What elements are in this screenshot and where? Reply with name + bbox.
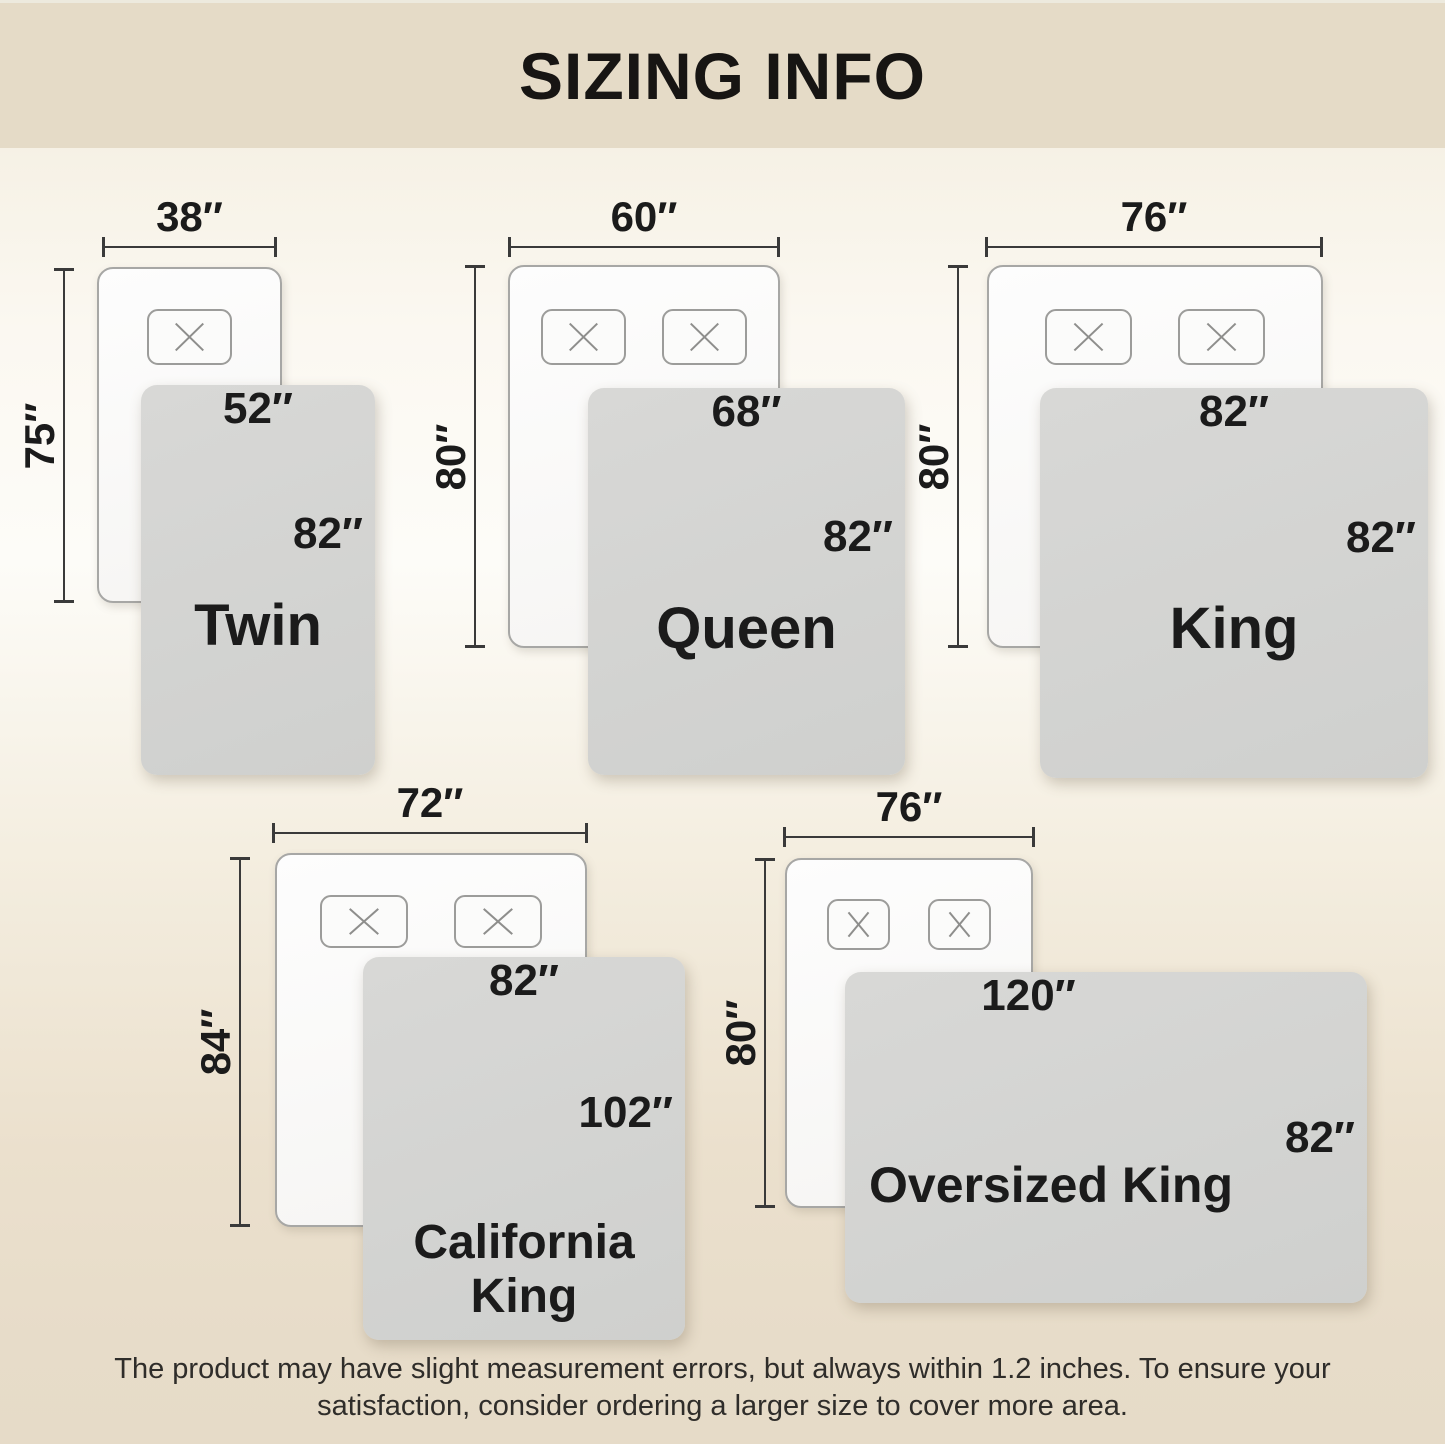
length-dimension-line: 80″ [755,858,775,1208]
dimension-tick [1032,827,1035,847]
blanket: 120″ 82″ Oversized King [845,972,1367,1303]
blanket: 82″ 102″ California King [363,957,685,1340]
blanket-length-label: 82″ [293,512,363,556]
mattress-width-label: 72″ [397,779,464,827]
pillow-x-icon [543,311,624,363]
dimension-line [508,246,780,248]
mattress-width-label: 76″ [876,783,943,831]
pillow [827,899,890,950]
size-name-label: King [1040,599,1428,659]
pillow [1045,309,1132,365]
blanket: 52″ 82″ Twin [141,385,375,775]
disclaimer-line-2: satisfaction, consider ordering a larger… [0,1388,1445,1425]
blanket-width-label: 120″ [845,974,1367,1018]
dimension-tick [274,237,277,257]
pillow-x-icon [149,311,230,363]
pillow [320,895,408,948]
pillow-x-icon [322,897,406,946]
width-dimension-line: 60″ [508,237,780,257]
mattress-length-label: 80″ [427,423,475,490]
pillow [454,895,542,948]
mattress-length-label: 80″ [910,423,958,490]
dimension-line [985,246,1323,248]
width-dimension-line: 72″ [272,823,588,843]
pillow-x-icon [456,897,540,946]
width-dimension-line: 76″ [783,827,1035,847]
pillow-x-icon [829,901,888,948]
pillow-x-icon [1180,311,1263,363]
dimension-tick [755,1205,775,1208]
dimension-tick [230,1224,250,1227]
blanket-length-label: 82″ [823,515,893,559]
length-dimension-line: 80″ [948,265,968,648]
size-name-label: Queen [588,599,905,659]
disclaimer-note: The product may have slight measurement … [0,1351,1445,1425]
blanket: 82″ 82″ King [1040,388,1428,778]
blanket-width-label: 82″ [363,959,685,1003]
pillow [147,309,232,365]
blanket-width-label: 52″ [141,387,375,431]
dimension-tick [948,645,968,648]
dimension-line [102,246,277,248]
width-dimension-line: 76″ [985,237,1323,257]
dimension-tick [465,645,485,648]
mattress-length-label: 80″ [717,1000,765,1067]
disclaimer-line-1: The product may have slight measurement … [0,1351,1445,1388]
sizing-infographic: SIZING INFO 38″ 75″ 52″ 82″ Twin [0,0,1445,1444]
dimension-line [783,836,1035,838]
pillow-x-icon [1047,311,1130,363]
length-dimension-line: 80″ [465,265,485,648]
blanket-length-label: 82″ [1346,516,1416,560]
mattress-length-label: 75″ [16,402,64,469]
dimension-tick [1320,237,1323,257]
mattress-width-label: 38″ [156,193,223,241]
pillow-x-icon [930,901,989,948]
pillow [1178,309,1265,365]
width-dimension-line: 38″ [102,237,277,257]
size-name-label: Oversized King [845,1157,1257,1214]
blanket-width-label: 68″ [588,390,905,434]
title-banner: SIZING INFO [0,0,1445,148]
pillow [541,309,626,365]
blanket-length-label: 102″ [579,1091,674,1135]
mattress-length-label: 84″ [192,1009,240,1076]
length-dimension-line: 75″ [54,268,74,603]
pillow-x-icon [664,311,745,363]
pillow [928,899,991,950]
length-dimension-line: 84″ [230,857,250,1227]
dimension-tick [585,823,588,843]
mattress-width-label: 76″ [1121,193,1188,241]
dimension-tick [54,600,74,603]
blanket-width-label: 82″ [1040,390,1428,434]
blanket: 68″ 82″ Queen [588,388,905,775]
size-name-label: Twin [141,596,375,656]
pillow [662,309,747,365]
dimension-line [272,832,588,834]
size-name-label: California King [363,1216,685,1324]
blanket-length-label: 82″ [1285,1116,1355,1160]
page-title: SIZING INFO [519,38,926,114]
dimension-tick [777,237,780,257]
mattress-width-label: 60″ [611,193,678,241]
